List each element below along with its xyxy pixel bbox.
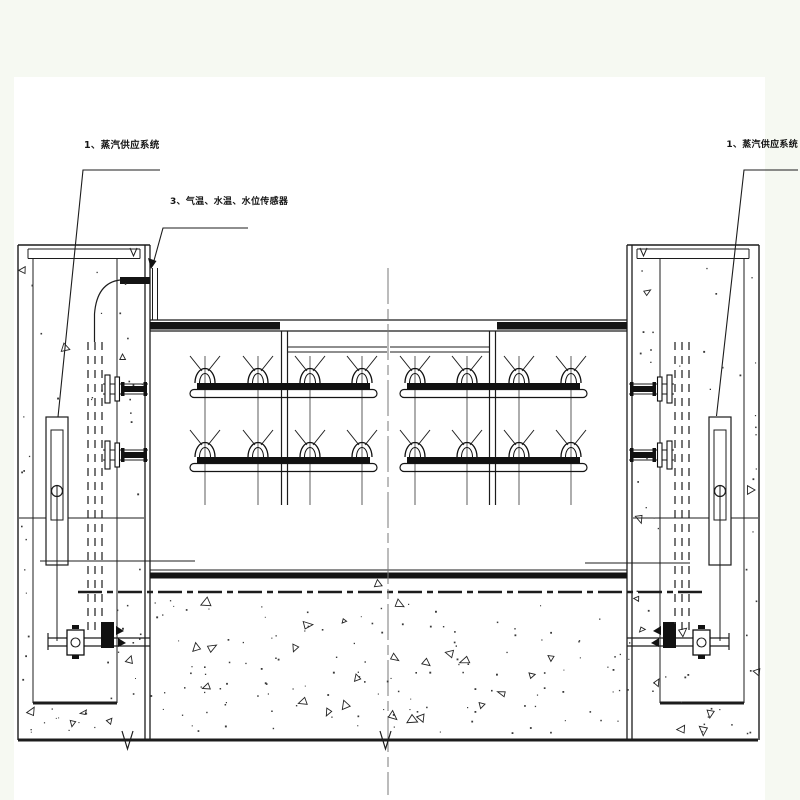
drawing-canvas: 1、蒸汽供应系统 3、气温、水温、水位传感器 1、蒸汽供应系统 [0, 0, 800, 800]
sensors-label: 3、气温、水温、水位传感器 [170, 194, 288, 207]
steam-system-label-left: 1、蒸汽供应系统 [84, 137, 160, 151]
engineering-drawing [0, 0, 800, 800]
steam-system-label-right: 1、蒸汽供应系统 [726, 137, 798, 150]
